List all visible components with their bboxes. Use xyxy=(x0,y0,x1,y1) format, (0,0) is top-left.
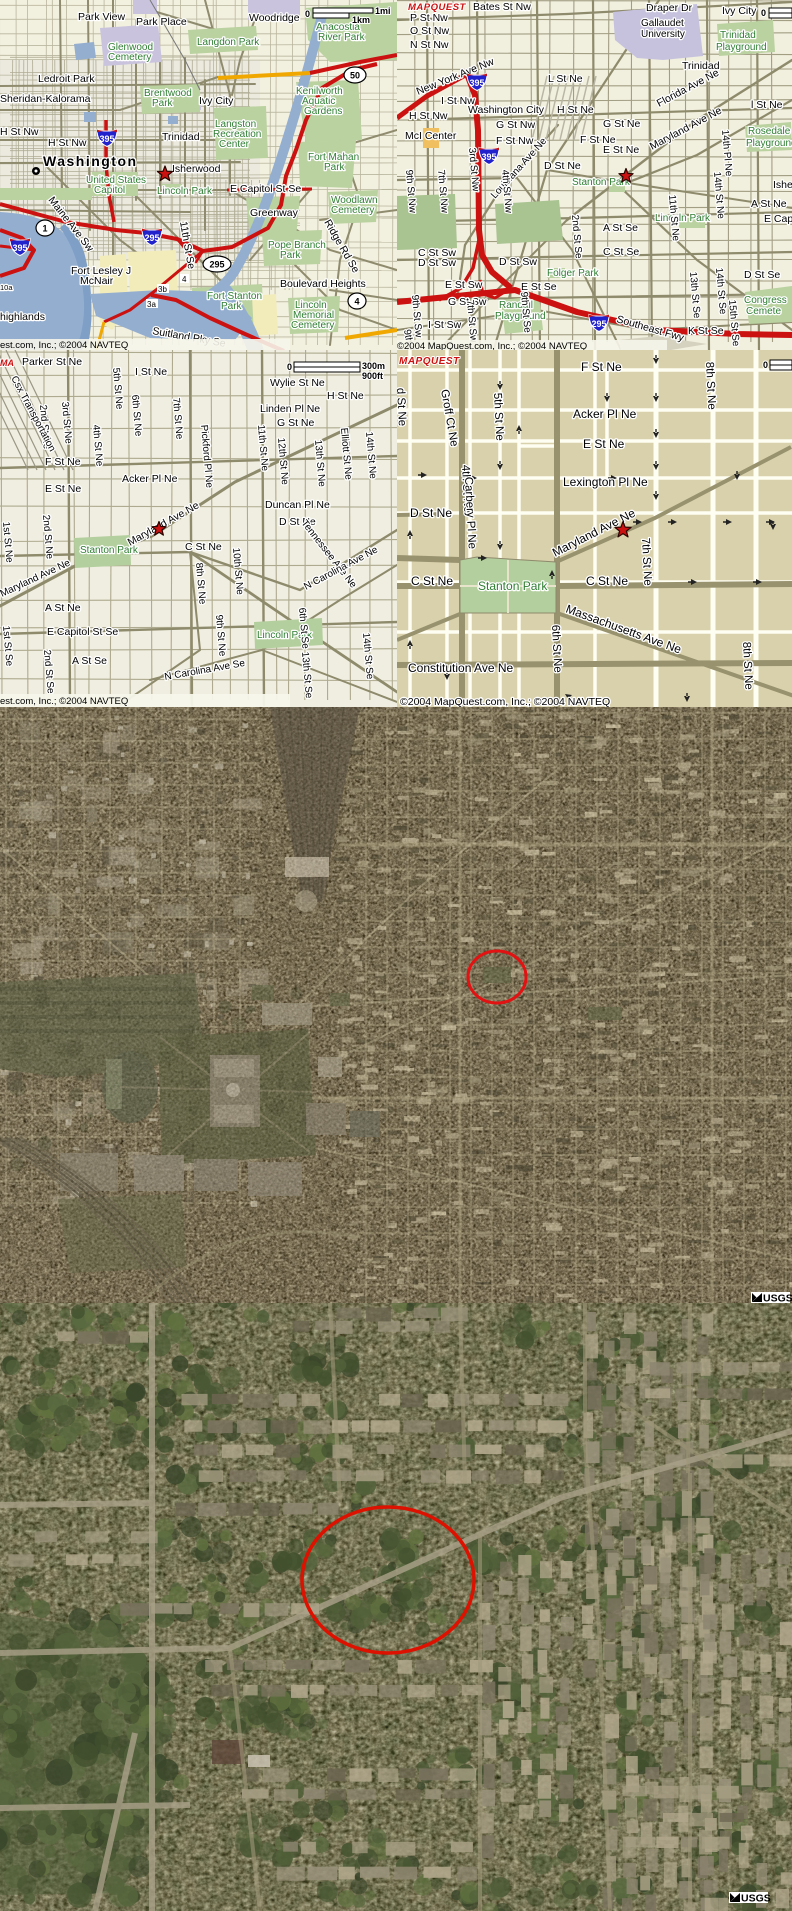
svg-text:MAPQUEST: MAPQUEST xyxy=(399,356,460,367)
svg-text:Acker Pl Ne: Acker Pl Ne xyxy=(122,473,178,485)
svg-text:295: 295 xyxy=(591,319,606,329)
svg-text:E St Sw: E St Sw xyxy=(445,279,483,291)
svg-text:1mi: 1mi xyxy=(375,6,391,16)
svg-text:est.com, Inc.; ©2004 NAVTEQ: est.com, Inc.; ©2004 NAVTEQ xyxy=(0,340,128,350)
svg-text:C St Ne: C St Ne xyxy=(586,574,628,588)
svg-text:4: 4 xyxy=(354,297,359,307)
svg-text:Langdon Park: Langdon Park xyxy=(197,37,260,48)
svg-text:0: 0 xyxy=(761,8,766,18)
svg-text:Sheridan-Kalorama: Sheridan-Kalorama xyxy=(0,93,91,105)
svg-text:E Capitol St Se: E Capitol St Se xyxy=(47,626,118,638)
svg-text:E St Ne: E St Ne xyxy=(583,437,625,451)
svg-text:Folger Park: Folger Park xyxy=(547,268,600,279)
svg-text:Lincoln Park: Lincoln Park xyxy=(655,213,711,224)
svg-text:O St Nw: O St Nw xyxy=(410,25,450,37)
svg-text:McI Center: McI Center xyxy=(405,130,457,142)
svg-text:E St Ne: E St Ne xyxy=(45,483,81,495)
svg-text:Center: Center xyxy=(219,139,250,150)
svg-text:Trinidad: Trinidad xyxy=(720,30,756,41)
svg-text:highlands: highlands xyxy=(0,311,45,323)
svg-text:Duncan Pl Ne: Duncan Pl Ne xyxy=(265,499,330,511)
svg-text:©2004 MapQuest.com, Inc.; ©200: ©2004 MapQuest.com, Inc.; ©2004 NAVTEQ xyxy=(397,341,587,350)
svg-text:I St Ne: I St Ne xyxy=(135,366,167,378)
svg-text:395: 395 xyxy=(469,78,484,88)
svg-text:Congress: Congress xyxy=(744,295,787,306)
svg-text:D St Sw: D St Sw xyxy=(499,256,537,268)
svg-text:H St Nw: H St Nw xyxy=(48,137,87,149)
svg-text:Cemete: Cemete xyxy=(746,306,781,317)
svg-text:River Park: River Park xyxy=(318,32,366,43)
svg-text:G St Nw: G St Nw xyxy=(496,119,536,131)
svg-text:Ishe: Ishe xyxy=(773,179,792,191)
svg-text:5th St Ne: 5th St Ne xyxy=(491,393,505,442)
svg-text:E Capitol St Se: E Capitol St Se xyxy=(230,183,301,195)
svg-text:300m: 300m xyxy=(362,361,385,371)
svg-text:Isherwood: Isherwood xyxy=(172,163,221,175)
svg-text:Park: Park xyxy=(324,162,346,173)
svg-text:C St Ne: C St Ne xyxy=(411,574,453,588)
svg-text:I St Sw: I St Sw xyxy=(428,319,462,331)
svg-text:©2004 MapQuest.com, Inc.; ©200: ©2004 MapQuest.com, Inc.; ©2004 NAVTEQ xyxy=(400,696,610,707)
svg-text:est.com, Inc.; ©2004 NAVTEQ: est.com, Inc.; ©2004 NAVTEQ xyxy=(0,696,128,707)
svg-text:G St Ne: G St Ne xyxy=(603,118,641,130)
svg-text:C St Se: C St Se xyxy=(603,246,639,258)
svg-text:University: University xyxy=(641,29,685,40)
svg-text:Washington: Washington xyxy=(43,153,138,169)
svg-text:D St Se: D St Se xyxy=(744,269,780,281)
svg-text:Greenway: Greenway xyxy=(250,207,299,219)
svg-text:3b: 3b xyxy=(158,285,167,294)
svg-text:Ivy City: Ivy City xyxy=(199,95,234,107)
svg-text:McNair: McNair xyxy=(80,275,114,287)
svg-text:F St Ne: F St Ne xyxy=(581,360,622,374)
svg-text:3a: 3a xyxy=(147,300,156,309)
svg-text:H St Ne: H St Ne xyxy=(557,104,594,116)
svg-text:10a: 10a xyxy=(0,283,13,292)
svg-text:A St Se: A St Se xyxy=(72,655,107,667)
svg-text:F St Nw: F St Nw xyxy=(496,135,534,147)
svg-text:Ivy City: Ivy City xyxy=(722,5,757,17)
svg-text:50: 50 xyxy=(350,71,360,81)
svg-text:900ft: 900ft xyxy=(362,371,383,381)
svg-text:Constitution Ave Ne: Constitution Ave Ne xyxy=(408,661,514,675)
svg-text:MA: MA xyxy=(0,358,14,368)
svg-text:0: 0 xyxy=(305,9,310,19)
svg-text:Rosedale: Rosedale xyxy=(748,126,791,137)
svg-text:K St Se: K St Se xyxy=(688,325,724,337)
svg-text:Cemetery: Cemetery xyxy=(291,320,334,331)
svg-text:395: 395 xyxy=(12,243,27,253)
svg-text:Bates St Nw: Bates St Nw xyxy=(473,1,531,13)
svg-text:Capitol: Capitol xyxy=(94,185,125,196)
svg-text:Playground: Playground xyxy=(746,138,792,149)
svg-text:1: 1 xyxy=(42,224,47,234)
svg-text:8th St Ne: 8th St Ne xyxy=(740,642,754,691)
svg-text:Cemetery: Cemetery xyxy=(108,52,151,63)
svg-text:0: 0 xyxy=(287,362,292,372)
svg-text:A St Ne: A St Ne xyxy=(751,198,787,210)
svg-text:Draper Dr: Draper Dr xyxy=(646,2,693,14)
svg-text:Acker Pl Ne: Acker Pl Ne xyxy=(573,407,637,421)
svg-text:Ledroit Park: Ledroit Park xyxy=(38,73,95,85)
svg-text:P St Nw: P St Nw xyxy=(410,12,448,24)
svg-text:USGS: USGS xyxy=(741,1893,771,1905)
svg-text:H St Ne: H St Ne xyxy=(327,390,364,402)
svg-text:Park: Park xyxy=(152,98,174,109)
svg-text:7th St Ne: 7th St Ne xyxy=(639,538,653,587)
svg-text:295: 295 xyxy=(144,233,159,243)
svg-text:395: 395 xyxy=(99,134,114,144)
svg-text:C St Ne: C St Ne xyxy=(185,541,222,553)
svg-text:Park Place: Park Place xyxy=(136,16,187,28)
svg-text:1km: 1km xyxy=(352,15,370,25)
svg-text:N St Nw: N St Nw xyxy=(410,39,449,51)
svg-text:Lexington Pl Ne: Lexington Pl Ne xyxy=(563,475,648,489)
svg-text:Wylie St Ne: Wylie St Ne xyxy=(270,377,325,389)
svg-text:395: 395 xyxy=(481,152,496,162)
svg-text:D St Ne: D St Ne xyxy=(410,506,452,520)
svg-text:H St Nw: H St Nw xyxy=(0,126,39,138)
svg-text:E Cap: E Cap xyxy=(764,213,792,225)
svg-text:H St Nw: H St Nw xyxy=(409,110,448,122)
svg-text:Trinidad: Trinidad xyxy=(162,131,200,143)
svg-text:Woodridge: Woodridge xyxy=(249,12,300,24)
svg-text:Gallaudet: Gallaudet xyxy=(641,18,684,29)
svg-text:A St Se: A St Se xyxy=(603,222,638,234)
svg-text:295: 295 xyxy=(209,260,224,270)
svg-text:d St Ne: d St Ne xyxy=(397,388,408,427)
svg-text:Parker St Ne: Parker St Ne xyxy=(22,356,82,368)
svg-text:Park: Park xyxy=(280,250,302,261)
svg-text:8th St Ne: 8th St Ne xyxy=(703,362,717,411)
svg-text:E St Ne: E St Ne xyxy=(603,144,639,156)
svg-text:A St Ne: A St Ne xyxy=(45,602,81,614)
svg-text:4: 4 xyxy=(182,275,187,284)
svg-text:Boulevard Heights: Boulevard Heights xyxy=(280,278,366,290)
svg-text:Cemetery: Cemetery xyxy=(331,205,374,216)
svg-text:6th St Ne: 6th St Ne xyxy=(549,625,563,674)
svg-text:Park View: Park View xyxy=(78,11,125,23)
svg-text:l St Ne: l St Ne xyxy=(751,99,783,111)
svg-text:L St Ne: L St Ne xyxy=(548,73,583,85)
svg-text:G St Ne: G St Ne xyxy=(277,417,315,429)
svg-text:Washington City: Washington City xyxy=(468,104,545,116)
svg-text:D St Sw: D St Sw xyxy=(418,257,456,269)
svg-text:0: 0 xyxy=(763,360,768,370)
svg-text:Park: Park xyxy=(221,301,243,312)
svg-text:Stanton Park: Stanton Park xyxy=(478,579,548,593)
svg-text:Lincoln Park: Lincoln Park xyxy=(157,186,213,197)
svg-text:Gardens: Gardens xyxy=(304,106,342,117)
svg-text:F St Ne: F St Ne xyxy=(45,456,81,468)
svg-text:USGS: USGS xyxy=(763,1293,792,1304)
svg-text:Linden Pl Ne: Linden Pl Ne xyxy=(260,403,320,415)
svg-text:Playground: Playground xyxy=(716,42,767,53)
svg-text:D St Ne: D St Ne xyxy=(544,160,581,172)
